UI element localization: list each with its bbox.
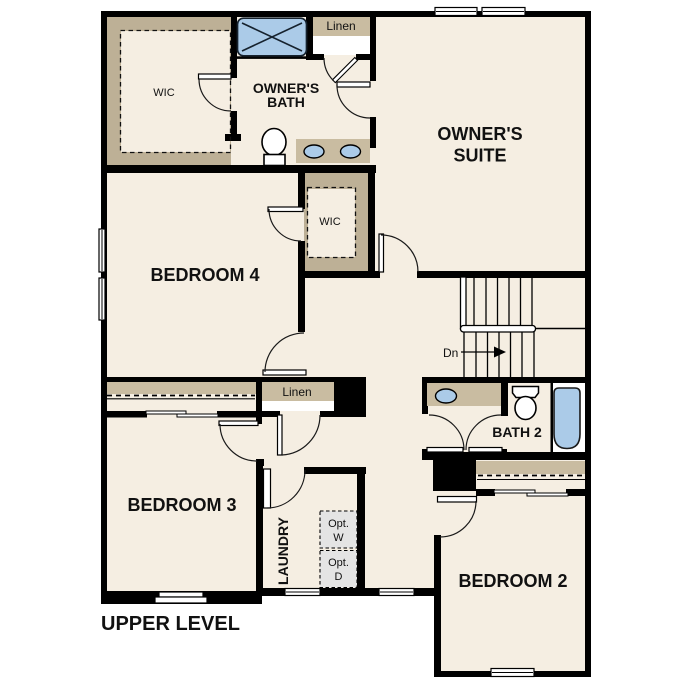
svg-text:BATH 2: BATH 2 bbox=[492, 424, 542, 440]
svg-text:Opt.: Opt. bbox=[328, 557, 349, 569]
svg-text:BEDROOM 4: BEDROOM 4 bbox=[150, 265, 259, 285]
svg-text:Linen: Linen bbox=[326, 19, 355, 33]
svg-text:BEDROOM 2: BEDROOM 2 bbox=[458, 571, 567, 591]
svg-text:SUITE: SUITE bbox=[453, 146, 506, 166]
svg-text:WIC: WIC bbox=[319, 216, 340, 228]
svg-text:UPPER LEVEL: UPPER LEVEL bbox=[101, 613, 240, 635]
svg-text:OWNER'S: OWNER'S bbox=[437, 124, 522, 144]
svg-text:LAUNDRY: LAUNDRY bbox=[275, 516, 291, 585]
svg-text:W: W bbox=[333, 532, 344, 544]
svg-text:Linen: Linen bbox=[282, 385, 311, 399]
svg-text:BATH: BATH bbox=[267, 94, 305, 110]
svg-text:BEDROOM 3: BEDROOM 3 bbox=[127, 495, 236, 515]
svg-text:WIC: WIC bbox=[153, 87, 174, 99]
svg-text:Opt.: Opt. bbox=[328, 518, 349, 530]
svg-text:D: D bbox=[335, 571, 343, 583]
svg-text:Dn: Dn bbox=[443, 346, 458, 360]
